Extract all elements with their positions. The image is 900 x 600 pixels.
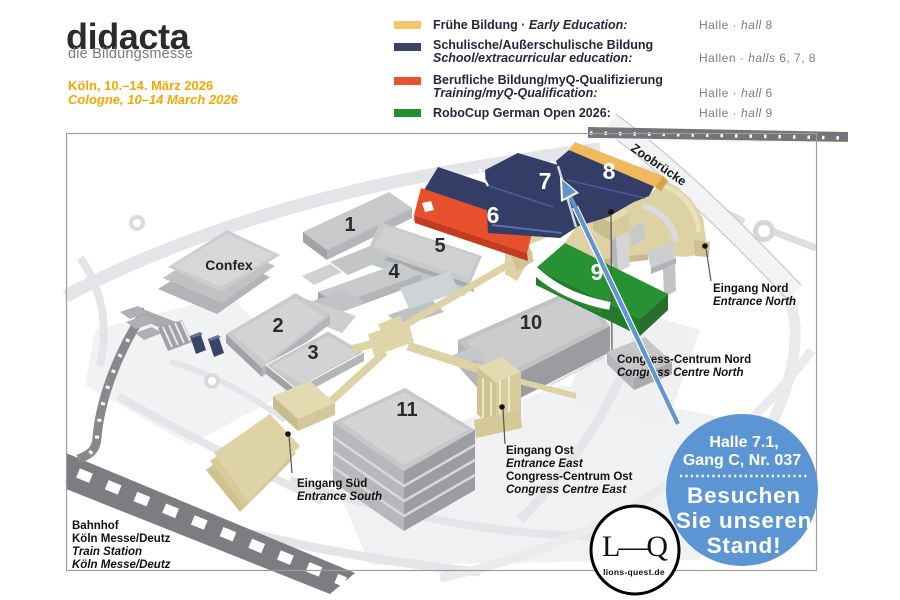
svg-text:Eingang Ost: Eingang Ost	[506, 445, 574, 457]
svg-text:Köln Messe/Deutz: Köln Messe/Deutz	[72, 559, 171, 571]
svg-text:Eingang Süd: Eingang Süd	[297, 478, 367, 490]
svg-text:Halle 7.1,: Halle 7.1,	[709, 434, 778, 451]
svg-text:Gang C, Nr. 037: Gang C, Nr. 037	[683, 452, 801, 469]
svg-text:11: 11	[396, 399, 417, 421]
svg-text:L—Q: L—Q	[602, 530, 668, 563]
svg-text:Köln Messe/Deutz: Köln Messe/Deutz	[72, 533, 171, 545]
svg-text:8: 8	[603, 158, 616, 184]
svg-text:Congress-Centrum Ost: Congress-Centrum Ost	[506, 471, 633, 483]
svg-text:Train Station: Train Station	[72, 546, 142, 558]
svg-text:4: 4	[388, 261, 400, 283]
svg-text:1: 1	[344, 214, 355, 236]
svg-text:lions-quest.de: lions-quest.de	[603, 567, 665, 577]
svg-text:2: 2	[272, 315, 283, 337]
svg-text:Eingang Nord: Eingang Nord	[713, 283, 788, 295]
svg-text:Congress Centre East: Congress Centre East	[506, 484, 627, 496]
svg-text:7: 7	[539, 168, 552, 194]
svg-text:3: 3	[307, 342, 318, 364]
svg-text:Bahnhof: Bahnhof	[72, 520, 119, 532]
svg-text:Stand!: Stand!	[707, 533, 782, 558]
svg-text:Entrance North: Entrance North	[713, 296, 796, 308]
svg-text:Entrance South: Entrance South	[297, 491, 382, 503]
svg-text:Sie unseren: Sie unseren	[676, 508, 812, 533]
svg-text:Entrance East: Entrance East	[506, 458, 584, 470]
svg-text:5: 5	[434, 235, 445, 257]
svg-text:Congress-Centrum Nord: Congress-Centrum Nord	[617, 354, 751, 366]
svg-text:6: 6	[487, 202, 500, 228]
svg-text:10: 10	[520, 312, 542, 334]
svg-text:Besuchen: Besuchen	[687, 483, 801, 508]
svg-text:Congress Centre North: Congress Centre North	[617, 367, 744, 379]
svg-text:Confex: Confex	[205, 257, 253, 273]
